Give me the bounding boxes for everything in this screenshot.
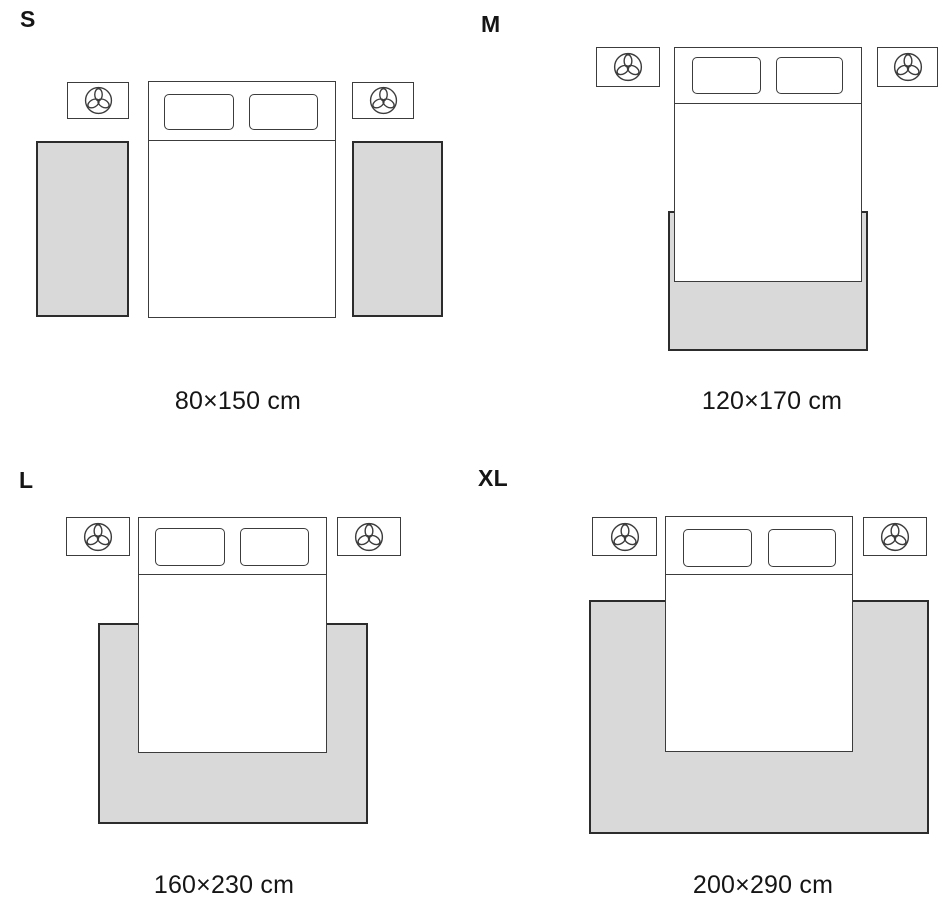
pillow-left bbox=[692, 57, 761, 94]
bed-headboard-area bbox=[139, 518, 326, 575]
pillow-left bbox=[683, 529, 752, 567]
bed-headboard-area bbox=[675, 48, 861, 104]
rug-left bbox=[36, 141, 129, 317]
pillow-right bbox=[240, 528, 309, 566]
size-guide-diagram: S 80×150 cm bbox=[0, 0, 950, 900]
nightstand-right bbox=[863, 517, 927, 556]
nightstand-right bbox=[337, 517, 401, 556]
bed-headboard-area bbox=[149, 82, 335, 141]
dimension-caption: 160×230 cm bbox=[124, 871, 324, 900]
bed bbox=[665, 516, 853, 752]
pillow-right bbox=[249, 94, 318, 130]
plant-icon bbox=[612, 51, 644, 83]
plant-icon bbox=[879, 521, 911, 553]
pillow-left bbox=[155, 528, 225, 566]
dimension-caption: 80×150 cm bbox=[138, 387, 338, 416]
nightstand-left bbox=[592, 517, 657, 556]
pillow-right bbox=[768, 529, 836, 567]
nightstand-left bbox=[596, 47, 660, 87]
plant-icon bbox=[353, 521, 385, 553]
plant-icon bbox=[892, 51, 924, 83]
plant-icon bbox=[83, 85, 114, 116]
dimension-caption: 200×290 cm bbox=[663, 871, 863, 900]
bed bbox=[148, 81, 336, 318]
nightstand-right bbox=[877, 47, 938, 87]
pillow-right bbox=[776, 57, 843, 94]
nightstand-right bbox=[352, 82, 414, 119]
rug-right bbox=[352, 141, 443, 317]
plant-icon bbox=[82, 521, 114, 553]
pillow-left bbox=[164, 94, 234, 130]
plant-icon bbox=[368, 85, 399, 116]
bed bbox=[138, 517, 327, 753]
nightstand-left bbox=[66, 517, 130, 556]
plant-icon bbox=[609, 521, 641, 553]
size-letter: XL bbox=[478, 465, 508, 492]
bed-headboard-area bbox=[666, 517, 852, 575]
nightstand-left bbox=[67, 82, 129, 119]
dimension-caption: 120×170 cm bbox=[672, 387, 872, 416]
bed bbox=[674, 47, 862, 282]
